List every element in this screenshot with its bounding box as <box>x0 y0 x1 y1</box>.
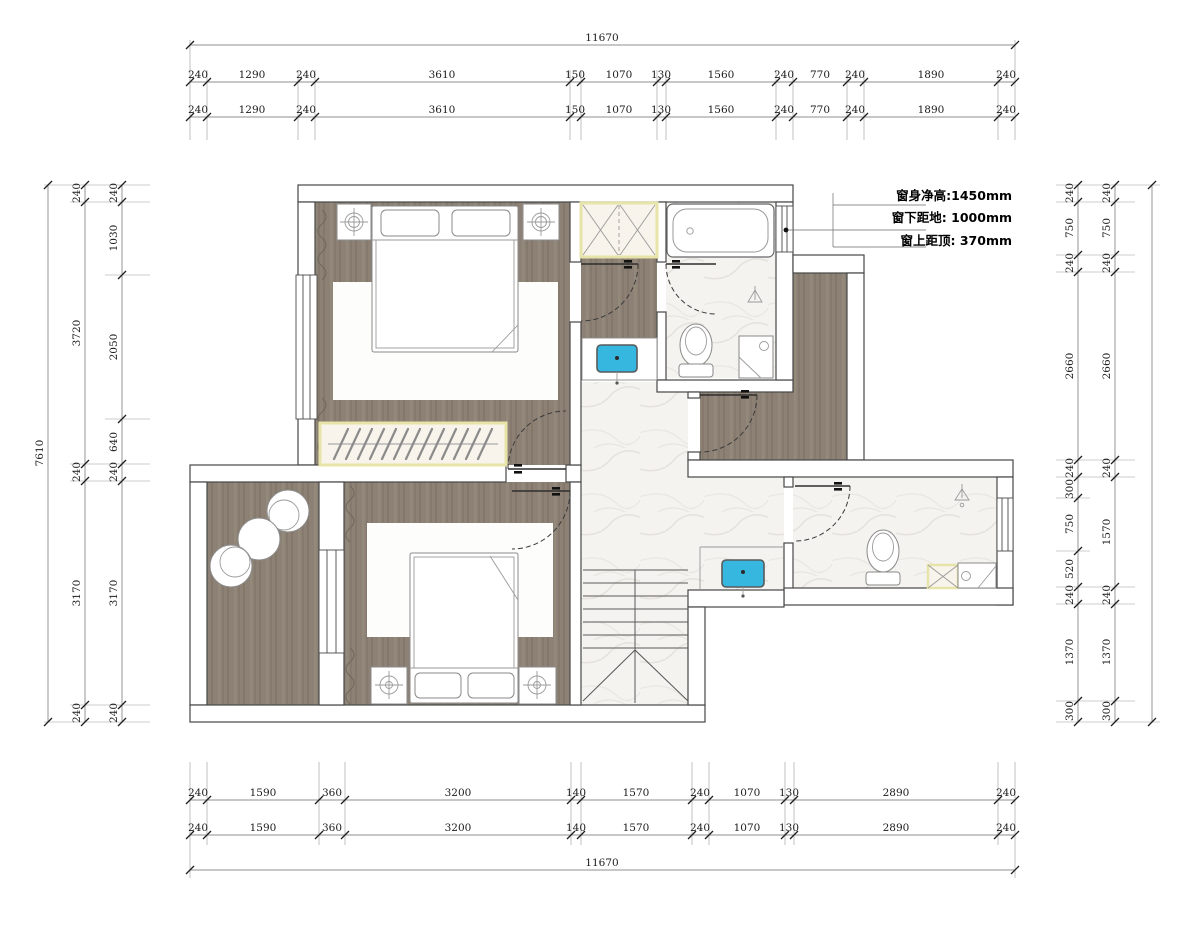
dim-label: 3610 <box>429 69 456 81</box>
dim-label: 7610 <box>34 440 46 467</box>
wall <box>566 465 581 482</box>
leader-dot <box>784 228 789 233</box>
dim-label: 1070 <box>606 69 633 81</box>
wall <box>570 202 581 262</box>
dim-label: 300 <box>1064 701 1076 721</box>
dim-label: 240 <box>996 104 1016 116</box>
door-handle <box>514 464 522 467</box>
dim-label: 1070 <box>734 822 761 834</box>
dim-label: 240 <box>71 703 83 723</box>
dim-label: 240 <box>108 703 120 723</box>
dim-label: 1570 <box>623 822 650 834</box>
dim-label: 240 <box>1101 585 1113 605</box>
wardrobe <box>320 423 506 465</box>
dim-label: 750 <box>1064 514 1076 534</box>
dim-label: 130 <box>779 822 799 834</box>
dim-label: 3200 <box>445 822 472 834</box>
dim-label: 2890 <box>883 787 910 799</box>
wall <box>570 322 581 465</box>
dim-label: 130 <box>779 787 799 799</box>
wall <box>657 380 793 392</box>
nightstand <box>371 667 407 704</box>
dim-label: 11670 <box>585 32 618 44</box>
door-handle <box>834 482 842 485</box>
dim-label: 240 <box>71 183 83 203</box>
dim-label: 240 <box>1101 458 1113 478</box>
dim-label: 240 <box>1064 458 1076 478</box>
dim-label: 1370 <box>1101 639 1113 666</box>
dim-label: 11670 <box>585 857 618 869</box>
wall <box>570 482 581 705</box>
lounge-chair <box>210 545 252 587</box>
dim-label: 240 <box>845 104 865 116</box>
dimension-lines <box>1078 185 1152 722</box>
nightstand <box>519 667 556 704</box>
dim-label: 3720 <box>71 320 83 347</box>
dim-label: 240 <box>188 104 208 116</box>
wall <box>847 273 864 460</box>
dim-label: 240 <box>996 787 1016 799</box>
washing-machine <box>739 336 773 378</box>
dim-label: 240 <box>1101 183 1113 203</box>
door-handle <box>741 396 749 399</box>
dim-label: 1290 <box>239 104 266 116</box>
dim-label: 1290 <box>239 69 266 81</box>
door-handle <box>672 260 680 263</box>
annotation-line: 窗下距地: 1000mm <box>892 210 1012 225</box>
dim-label: 300 <box>1064 479 1076 499</box>
washing-machine <box>958 563 996 588</box>
storage-cabinet <box>928 565 958 588</box>
door-handle <box>741 390 749 393</box>
dim-label: 1070 <box>734 787 761 799</box>
dim-label: 3170 <box>108 580 120 607</box>
dim-label: 3170 <box>71 580 83 607</box>
dim-label: 240 <box>1064 253 1076 273</box>
dim-label: 360 <box>322 787 342 799</box>
dim-label: 140 <box>566 822 586 834</box>
dim-label: 240 <box>296 69 316 81</box>
dim-label: 240 <box>1101 253 1113 273</box>
dim-label: 2050 <box>108 334 120 361</box>
floor-plan-page: 11670 240 1290 240 3610 150 1070 130 156… <box>0 0 1200 925</box>
wall <box>190 465 506 482</box>
toilet <box>866 530 900 585</box>
dimensions-left: 7610 240 3720 240 3170 240 240 1030 2050… <box>34 181 150 726</box>
dimension-lines <box>48 185 122 722</box>
dim-label: 240 <box>71 462 83 482</box>
dim-label: 2890 <box>883 822 910 834</box>
toilet <box>679 324 713 377</box>
dim-label: 240 <box>996 69 1016 81</box>
wall <box>298 185 793 202</box>
dim-label: 150 <box>565 104 585 116</box>
dim-label: 150 <box>565 69 585 81</box>
wall <box>784 477 793 487</box>
dim-label: 240 <box>108 183 120 203</box>
dim-label: 750 <box>1064 218 1076 238</box>
window <box>319 550 344 653</box>
window <box>296 275 317 419</box>
dimensions-right: 240 750 240 2660 240 300 750 520 240 137… <box>1056 181 1160 726</box>
annotation-line: 窗身净高:1450mm <box>896 188 1012 203</box>
bathtub <box>667 204 774 257</box>
wall <box>688 392 700 398</box>
dim-label: 1570 <box>623 787 650 799</box>
dim-label: 240 <box>774 104 794 116</box>
nightstand <box>523 204 559 240</box>
double-bed <box>372 206 518 352</box>
door-handle <box>672 266 680 269</box>
door-handle <box>624 260 632 263</box>
storage-cabinet <box>581 203 657 257</box>
dim-label: 2660 <box>1064 353 1076 380</box>
dim-label: 640 <box>108 432 120 452</box>
dim-label: 770 <box>810 69 830 81</box>
dim-label: 1890 <box>918 104 945 116</box>
dim-label: 520 <box>1064 559 1076 579</box>
door-handle <box>552 493 560 496</box>
extension-lines <box>190 40 1015 140</box>
wall <box>784 588 1013 605</box>
dim-label: 140 <box>566 787 586 799</box>
door-handle <box>552 487 560 490</box>
dim-label: 770 <box>810 104 830 116</box>
dim-label: 3610 <box>429 104 456 116</box>
dim-label: 1890 <box>918 69 945 81</box>
door-handle <box>624 266 632 269</box>
dim-label: 1030 <box>108 225 120 252</box>
door-handle <box>834 488 842 491</box>
extension-lines <box>44 185 150 722</box>
annotation-line: 窗上距顶: 370mm <box>901 233 1013 248</box>
dimensions-bottom: 240 1590 360 3200 140 1570 240 1070 130 … <box>186 762 1019 878</box>
double-bed <box>410 553 518 703</box>
dim-label: 750 <box>1101 218 1113 238</box>
dim-label: 240 <box>690 822 710 834</box>
wall <box>688 607 705 705</box>
dim-label: 1590 <box>250 787 277 799</box>
dim-label: 1570 <box>1101 519 1113 546</box>
wall <box>793 255 864 273</box>
dim-label: 1560 <box>708 104 735 116</box>
dimensions-top: 11670 240 1290 240 3610 150 1070 130 156… <box>186 32 1019 140</box>
dim-label: 240 <box>1064 585 1076 605</box>
dim-label: 240 <box>188 69 208 81</box>
wall <box>190 482 207 705</box>
floor-plan-drawing: 11670 240 1290 240 3610 150 1070 130 156… <box>0 0 1200 925</box>
dim-label: 240 <box>845 69 865 81</box>
dim-label: 240 <box>774 69 794 81</box>
dim-label: 240 <box>996 822 1016 834</box>
dim-label: 240 <box>108 462 120 482</box>
dim-label: 2660 <box>1101 353 1113 380</box>
nightstand <box>337 204 371 240</box>
dim-label: 240 <box>188 787 208 799</box>
wall <box>688 460 1013 477</box>
dim-label: 240 <box>690 787 710 799</box>
door-handle <box>514 471 522 474</box>
dim-label: 130 <box>651 104 671 116</box>
dim-label: 1590 <box>250 822 277 834</box>
dim-label: 360 <box>322 822 342 834</box>
wall <box>784 543 793 590</box>
dim-label: 3200 <box>445 787 472 799</box>
window <box>997 498 1013 551</box>
wall <box>657 312 666 380</box>
wall <box>190 705 705 722</box>
wall <box>688 590 784 607</box>
dim-label: 1070 <box>606 104 633 116</box>
dim-label: 300 <box>1101 701 1113 721</box>
dim-label: 1370 <box>1064 639 1076 666</box>
dim-label: 130 <box>651 69 671 81</box>
dim-label: 240 <box>1064 183 1076 203</box>
wall <box>688 452 700 460</box>
dim-label: 240 <box>296 104 316 116</box>
dim-label: 240 <box>188 822 208 834</box>
dim-label: 1560 <box>708 69 735 81</box>
window-annotation: 窗身净高:1450mm 窗下距地: 1000mm 窗上距顶: 370mm <box>784 188 1012 248</box>
